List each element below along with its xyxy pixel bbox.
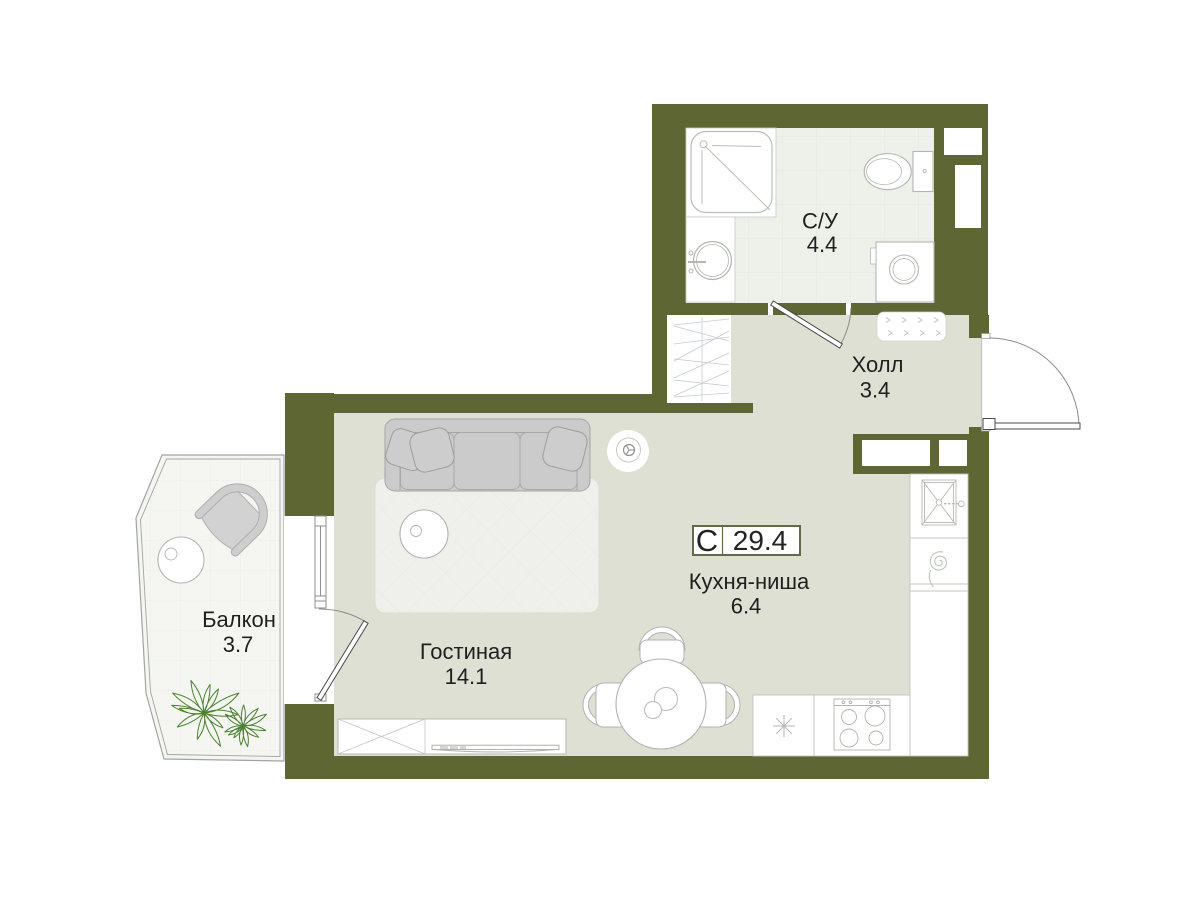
svg-text:Балкон: Балкон	[202, 607, 276, 632]
svg-text:С/У: С/У	[802, 209, 839, 234]
svg-text:Холл: Холл	[852, 352, 904, 377]
svg-text:С: С	[696, 523, 718, 558]
svg-text:4.4: 4.4	[807, 232, 838, 257]
svg-text:Гостиная: Гостиная	[420, 639, 512, 664]
svg-text:14.1: 14.1	[445, 664, 488, 689]
svg-text:3.4: 3.4	[860, 378, 891, 403]
svg-text:3.7: 3.7	[223, 632, 254, 657]
svg-text:6.4: 6.4	[731, 594, 762, 619]
svg-text:Кухня-ниша: Кухня-ниша	[689, 569, 810, 594]
svg-text:29.4: 29.4	[733, 525, 788, 556]
